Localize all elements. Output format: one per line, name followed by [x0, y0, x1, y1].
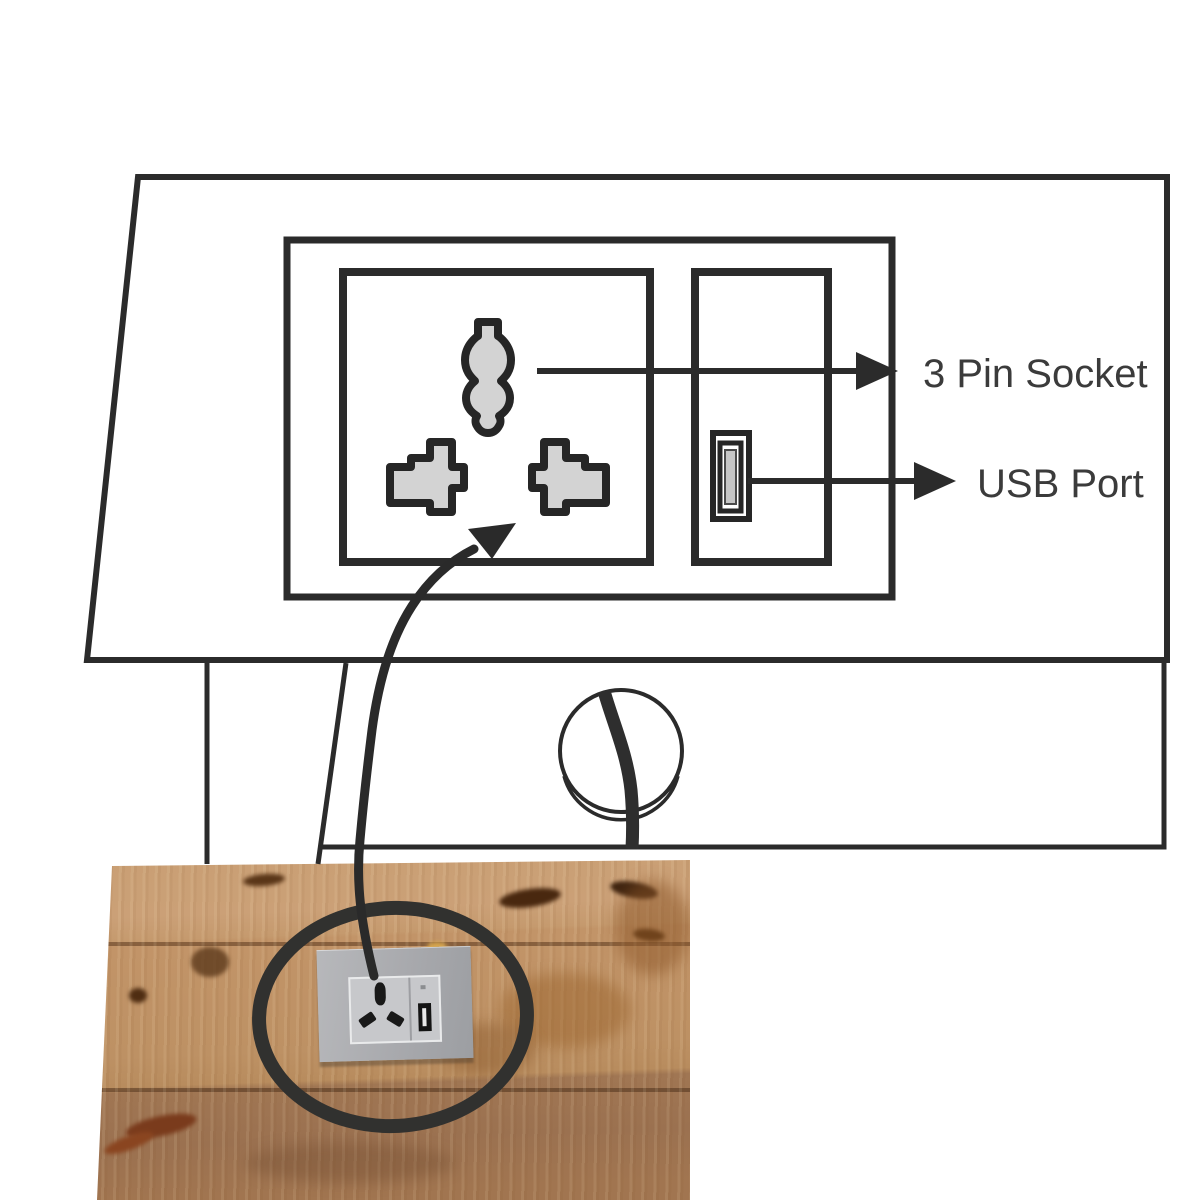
usb-connector-tongue [725, 450, 736, 504]
desk-top-outline [87, 177, 1167, 660]
line-diagram [0, 0, 1200, 1200]
usb-callout-arrowhead [914, 462, 956, 500]
curved-arrow-head [468, 523, 516, 559]
earth-pin-hole-icon [465, 322, 511, 433]
cable-icon [604, 691, 633, 849]
annotation-circle-icon [253, 901, 532, 1133]
neutral-pin-hole-icon [532, 442, 606, 512]
live-pin-hole-icon [390, 442, 464, 512]
desk-apron-outline [320, 662, 1164, 847]
infographic-canvas: 3 Pin Socket USB Port [0, 0, 1200, 1200]
desk-leg-back-line [318, 663, 346, 864]
usb-port-label: USB Port [977, 462, 1144, 507]
three-pin-socket-label: 3 Pin Socket [923, 352, 1148, 397]
faceplate-frame [287, 240, 892, 597]
